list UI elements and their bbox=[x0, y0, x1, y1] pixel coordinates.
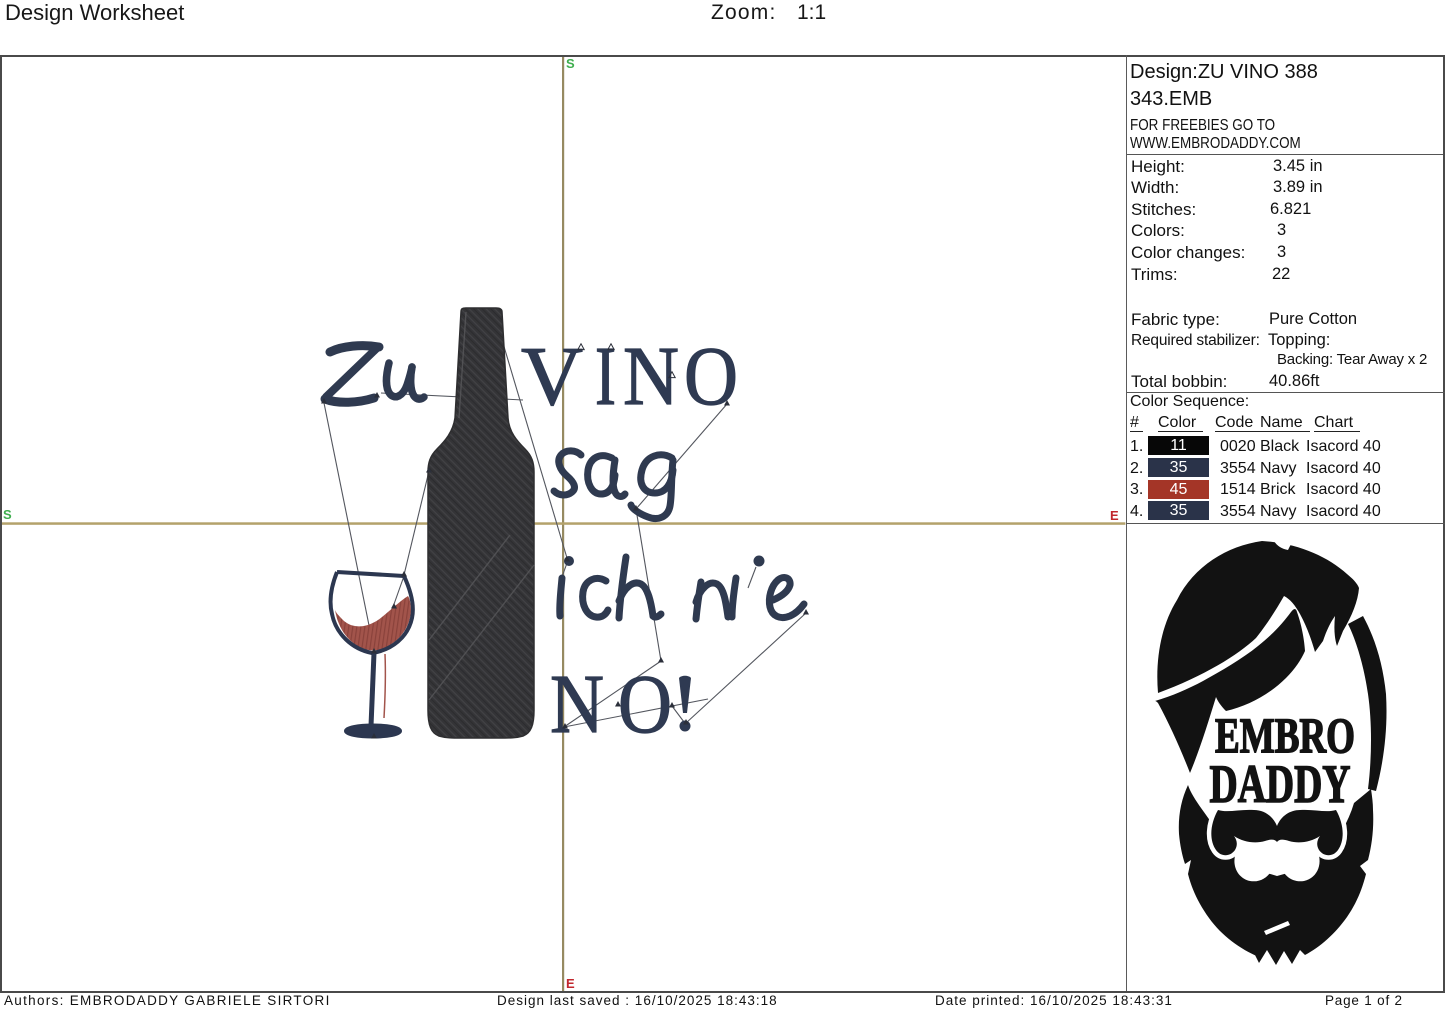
svg-text:N: N bbox=[623, 330, 679, 423]
svg-text:V: V bbox=[521, 330, 583, 423]
svg-text:O: O bbox=[684, 330, 738, 423]
svg-text:N: N bbox=[550, 658, 604, 751]
svg-text:O: O bbox=[618, 658, 672, 751]
svg-text:I: I bbox=[595, 330, 616, 423]
svg-text:DADDY: DADDY bbox=[1210, 754, 1351, 814]
